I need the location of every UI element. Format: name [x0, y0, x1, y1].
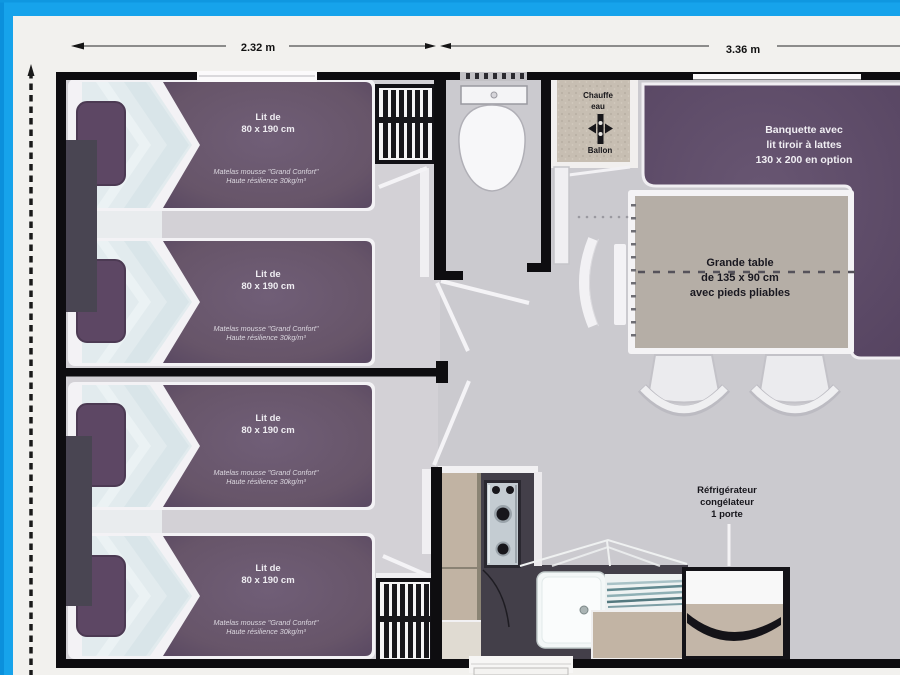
svg-text:Lit de: Lit de: [255, 563, 280, 574]
svg-text:Banquette avec: Banquette avec: [765, 124, 843, 136]
svg-text:Matelas mousse "Grand Confort": Matelas mousse "Grand Confort": [214, 167, 319, 176]
svg-text:Lit de: Lit de: [255, 413, 280, 424]
svg-text:congélateur: congélateur: [700, 497, 754, 508]
svg-text:130 x 200 en option: 130 x 200 en option: [756, 154, 853, 166]
svg-text:avec pieds pliables: avec pieds pliables: [690, 287, 790, 299]
svg-text:1 porte: 1 porte: [711, 509, 743, 520]
svg-text:80 x 190 cm: 80 x 190 cm: [241, 425, 294, 436]
svg-text:3.36 m: 3.36 m: [726, 44, 760, 56]
svg-text:Matelas mousse "Grand Confort": Matelas mousse "Grand Confort": [214, 324, 319, 333]
svg-text:Haute résilience 30kg/m³: Haute résilience 30kg/m³: [226, 627, 306, 636]
svg-text:Chauffe: Chauffe: [583, 91, 613, 100]
svg-text:Lit de: Lit de: [255, 269, 280, 280]
svg-text:2.32 m: 2.32 m: [241, 42, 275, 54]
svg-text:eau: eau: [591, 102, 605, 111]
svg-text:Ballon: Ballon: [588, 146, 613, 155]
svg-text:80 x 190 cm: 80 x 190 cm: [241, 124, 294, 135]
svg-text:Matelas mousse "Grand Confort": Matelas mousse "Grand Confort": [214, 618, 319, 627]
svg-text:Haute résilience 30kg/m³: Haute résilience 30kg/m³: [226, 477, 306, 486]
svg-text:de 135 x 90 cm: de 135 x 90 cm: [701, 272, 779, 284]
svg-text:80 x 190 cm: 80 x 190 cm: [241, 281, 294, 292]
svg-text:Lit de: Lit de: [255, 112, 280, 123]
svg-text:Réfrigérateur: Réfrigérateur: [697, 485, 757, 496]
svg-text:Haute résilience 30kg/m³: Haute résilience 30kg/m³: [226, 176, 306, 185]
svg-text:Haute résilience 30kg/m³: Haute résilience 30kg/m³: [226, 333, 306, 342]
svg-text:lit tiroir à lattes: lit tiroir à lattes: [766, 139, 841, 151]
svg-text:Grande table: Grande table: [706, 257, 773, 269]
svg-text:80 x 190 cm: 80 x 190 cm: [241, 575, 294, 586]
svg-text:Matelas mousse "Grand Confort": Matelas mousse "Grand Confort": [214, 468, 319, 477]
